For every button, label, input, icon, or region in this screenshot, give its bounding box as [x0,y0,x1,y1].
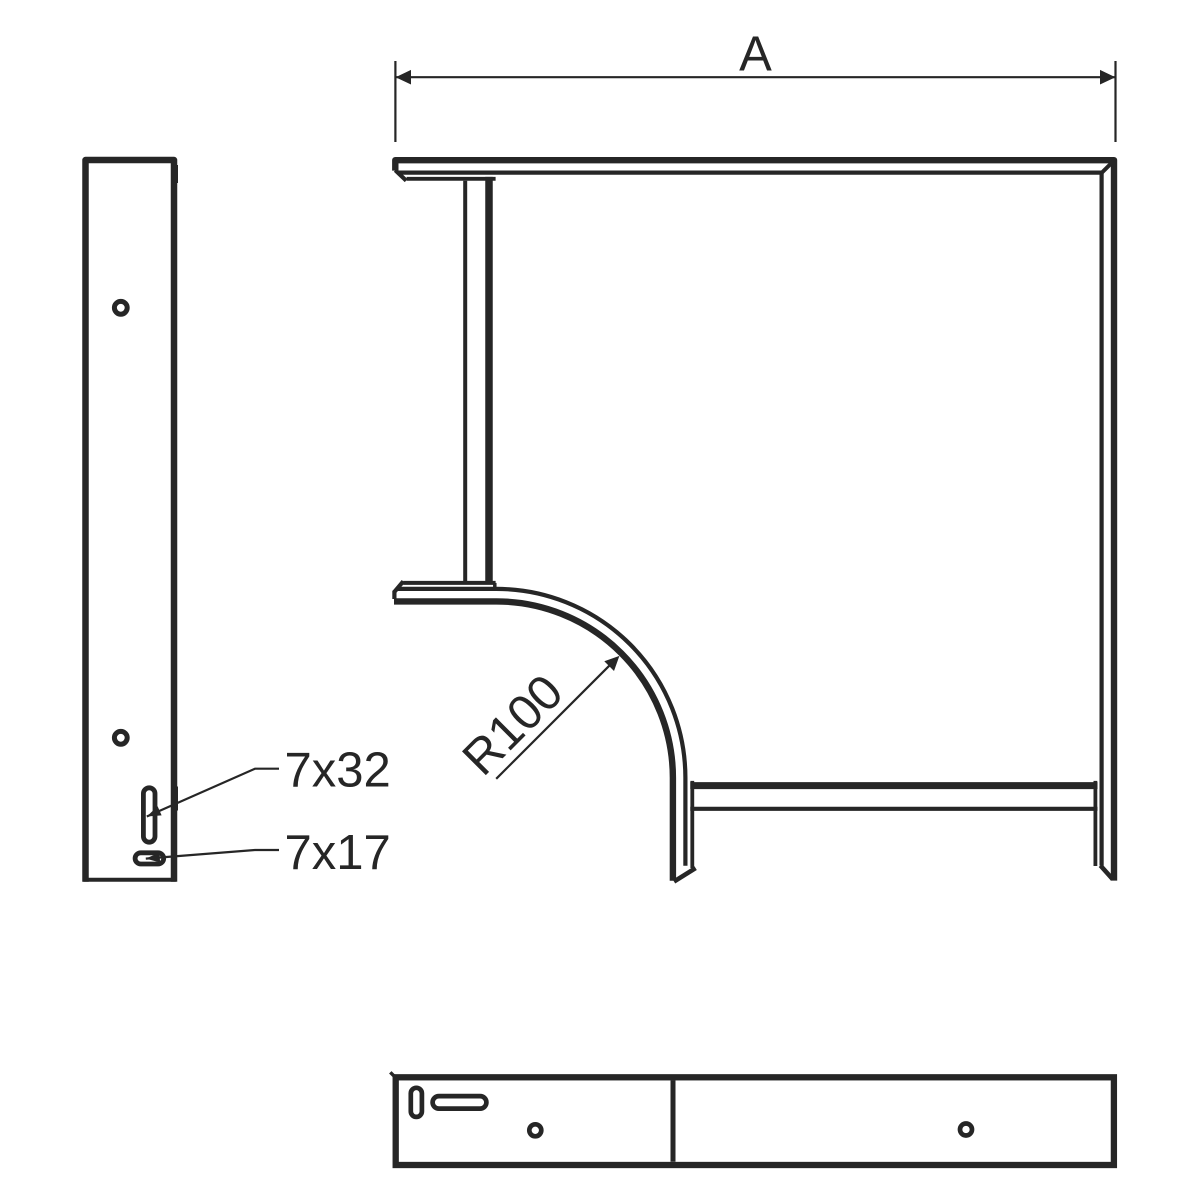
svg-text:7x17: 7x17 [285,826,391,880]
svg-text:7x32: 7x32 [285,744,391,798]
svg-text:A: A [739,28,772,82]
